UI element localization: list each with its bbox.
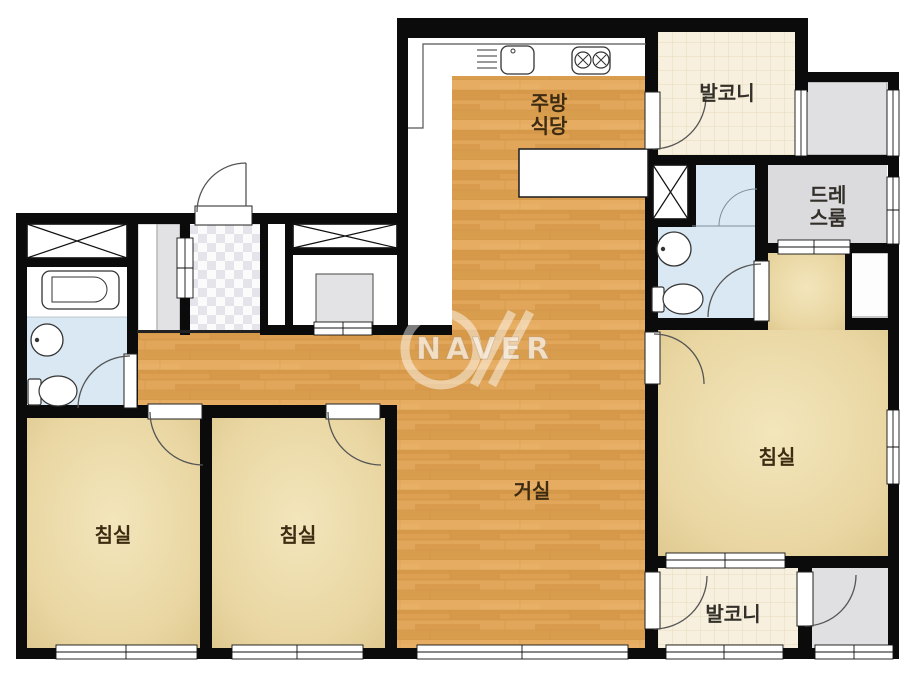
kitchen-sink-icon bbox=[501, 46, 534, 74]
watermark-text: NAVER bbox=[416, 332, 554, 367]
utility-room-bottom bbox=[812, 568, 888, 648]
entry-door-arc bbox=[197, 163, 246, 212]
window-bedroom-1 bbox=[56, 645, 197, 659]
bathroom-right-upper bbox=[692, 165, 755, 219]
label-bedroom-2: 침실 bbox=[280, 523, 317, 547]
window-bedroom-master-right bbox=[887, 410, 899, 484]
living-room-floor bbox=[397, 410, 648, 648]
window-utility-bottom bbox=[815, 645, 893, 659]
bedroom-master-nook bbox=[768, 253, 845, 330]
entry-door-frame bbox=[195, 206, 252, 225]
entry-cabinet-left bbox=[138, 224, 157, 332]
sliding-door-bedroom-balcony bbox=[666, 553, 785, 568]
window-ac-room-left bbox=[795, 90, 807, 156]
ac-unit-room bbox=[806, 82, 887, 155]
bathroom-left-door-frame bbox=[124, 354, 137, 408]
stove-icon bbox=[572, 47, 610, 74]
hallway-floor bbox=[138, 333, 648, 410]
bedroom-master-floor bbox=[658, 330, 888, 556]
window-dressroom-right bbox=[887, 177, 899, 244]
kitchen-island bbox=[519, 149, 648, 197]
label-living-room: 거실 bbox=[514, 479, 551, 503]
dish-rack-icon bbox=[477, 50, 497, 68]
sliding-door-utility-closet bbox=[314, 322, 372, 335]
duct-shaft-right bbox=[653, 165, 688, 219]
label-kitchen-line1: 주방 bbox=[531, 91, 568, 115]
duct-shaft-left bbox=[27, 224, 127, 258]
bathtub-icon bbox=[42, 271, 119, 309]
label-kitchen-line2: 식당 bbox=[531, 114, 568, 138]
sink-right-icon bbox=[657, 232, 691, 266]
shoe-closet-door bbox=[177, 238, 193, 298]
floor-plan-page: NAVER 주방 식당 발코니 드레 스룸 침실 거실 침실 침실 발코니 bbox=[0, 0, 923, 676]
label-dressroom-line2: 스룸 bbox=[810, 206, 847, 230]
entry-foyer-tile bbox=[190, 224, 260, 332]
label-bedroom-1: 침실 bbox=[95, 523, 132, 547]
toilet-left-icon bbox=[28, 376, 77, 406]
window-balcony-bottom bbox=[666, 645, 783, 659]
bedroom-2-door-frame bbox=[326, 404, 380, 419]
built-in-closet bbox=[850, 253, 888, 317]
utility-room-door-frame bbox=[797, 572, 813, 626]
label-bedroom-master: 침실 bbox=[759, 445, 796, 469]
toilet-right-icon bbox=[652, 284, 703, 314]
bedroom-1-door-frame bbox=[148, 404, 202, 419]
duct-shaft-center bbox=[293, 224, 397, 248]
sliding-door-dressroom bbox=[778, 240, 850, 254]
kitchen-balcony-door-frame bbox=[645, 92, 660, 149]
label-balcony-top: 발코니 bbox=[699, 81, 754, 105]
window-ac-room-right bbox=[887, 90, 899, 156]
window-living-room bbox=[417, 645, 628, 659]
balcony-bottom-door-frame bbox=[645, 572, 660, 629]
label-balcony-bottom: 발코니 bbox=[705, 602, 760, 626]
sink-left-icon bbox=[31, 324, 63, 356]
bedroom-master-door-frame bbox=[645, 332, 660, 384]
window-bedroom-2 bbox=[232, 645, 363, 659]
floor-plan: NAVER 주방 식당 발코니 드레 스룸 침실 거실 침실 침실 발코니 bbox=[0, 0, 923, 676]
bathroom-right-door-frame bbox=[754, 261, 769, 321]
label-dressroom-line1: 드레 bbox=[810, 183, 847, 207]
